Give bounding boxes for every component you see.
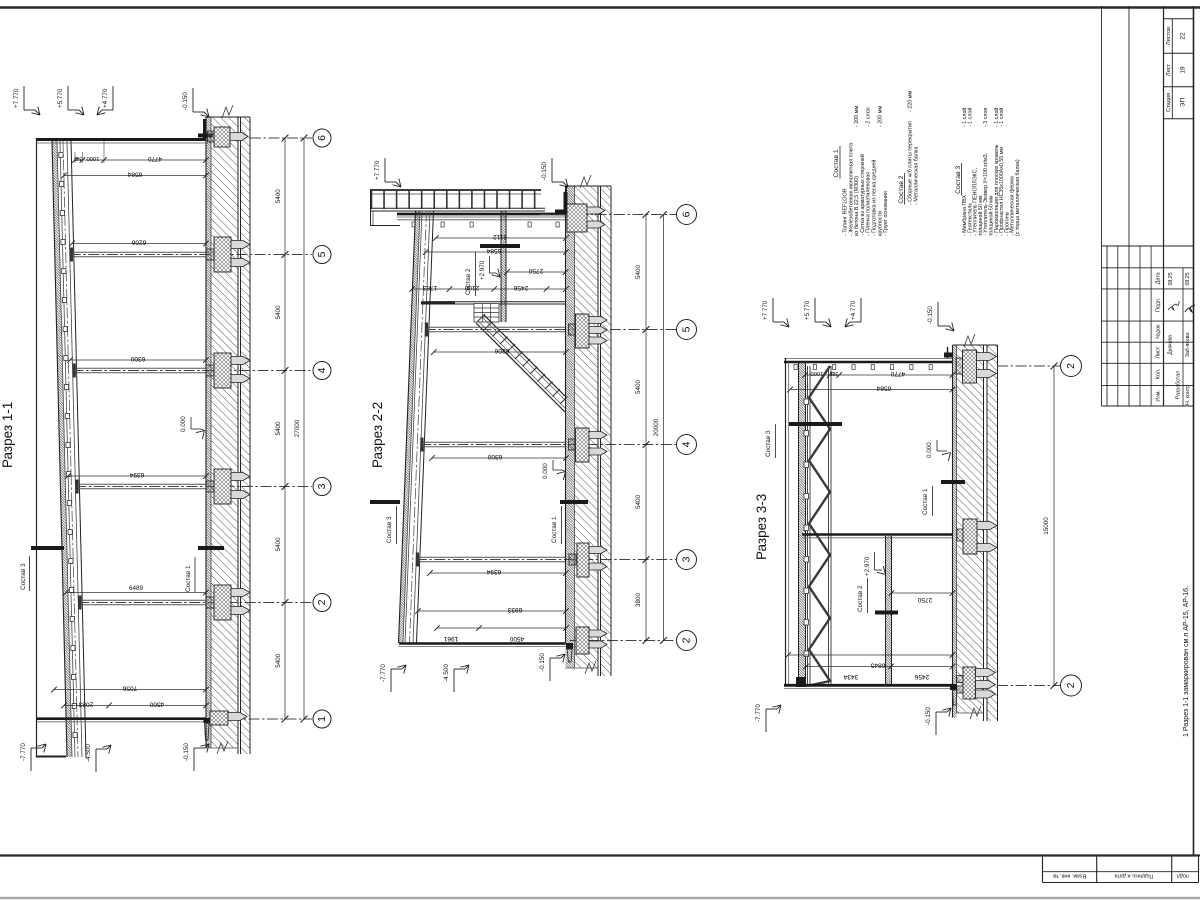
svg-text:Состав 2: Состав 2 [465,268,472,295]
svg-text:4770: 4770 [890,370,905,377]
svg-text:5: 5 [316,251,328,257]
svg-text:1000: 1000 [811,370,824,376]
svg-text:2: 2 [1065,682,1077,688]
svg-text:+7.770: +7.770 [13,88,20,108]
svg-text:ЭП: ЭП [1180,98,1187,108]
svg-text:1961: 1961 [443,635,458,642]
svg-text:Состав 2: Состав 2 [898,175,905,203]
svg-text:+5.770: +5.770 [57,88,64,108]
svg-text:5400: 5400 [275,537,282,552]
svg-text:Состав 1: Состав 1 [922,488,929,515]
svg-text:-0.150: -0.150 [927,306,934,324]
svg-text:5400: 5400 [275,653,282,668]
svg-text:подл.: подл. [1175,873,1189,879]
svg-text:6: 6 [681,211,693,217]
svg-text:3: 3 [316,483,328,489]
svg-text:2083: 2083 [78,701,93,708]
svg-text:1763: 1763 [422,284,437,291]
svg-text:3800: 3800 [635,593,642,608]
svg-text:Разрез 1-1: Разрез 1-1 [0,402,15,468]
svg-text:5400: 5400 [635,380,642,395]
svg-text:4500: 4500 [149,701,164,708]
svg-text:Состав 2: Состав 2 [857,585,864,612]
svg-text:+4.770: +4.770 [850,300,857,320]
svg-text:1: 1 [316,716,328,722]
svg-text:7056: 7056 [122,685,137,692]
svg-text:-0.150: -0.150 [183,743,190,761]
svg-text:+7.770: +7.770 [374,160,381,180]
svg-text:6394: 6394 [129,471,144,478]
svg-text:- 200 мм: - 200 мм [877,106,883,127]
svg-text:- 3 слоя: - 3 слоя [983,108,989,127]
svg-text:Листов: Листов [1166,27,1172,45]
svg-text:6845: 6845 [870,662,885,669]
svg-text:4: 4 [681,441,693,447]
svg-text:5: 5 [681,326,693,332]
svg-text:6584: 6584 [127,171,142,178]
svg-text:+4.770: +4.770 [102,88,109,108]
svg-text:Состав 1: Состав 1 [185,565,192,592]
svg-text:5400: 5400 [635,265,642,280]
svg-text:6584: 6584 [876,385,891,392]
svg-text:Подп.: Подп. [1156,298,1162,312]
svg-text:2750: 2750 [917,596,932,603]
svg-text:(с торца металлическая балка): (с торца металлическая балка) [1015,159,1021,236]
svg-text:- Металлическая балка: - Металлическая балка [914,147,920,205]
svg-text:08.25: 08.25 [1185,272,1191,285]
svg-text:Заб-якова: Заб-якова [1185,333,1191,357]
svg-text:+5.770: +5.770 [804,300,811,320]
svg-text:Состав 3: Состав 3 [765,430,772,457]
svg-text:2: 2 [681,637,693,643]
svg-text:-0.150: -0.150 [541,162,548,180]
svg-text:2: 2 [316,599,328,605]
svg-text:6933: 6933 [507,606,522,613]
svg-text:Лист: Лист [1166,63,1172,76]
svg-text:6394: 6394 [486,568,501,575]
svg-text:-7.770: -7.770 [380,664,387,682]
svg-text:27000: 27000 [294,419,301,437]
svg-text:2456: 2456 [914,673,929,680]
svg-text:0.000: 0.000 [180,416,187,432]
svg-text:-4.500: -4.500 [443,664,450,682]
svg-text:Стадия: Стадия [1166,93,1172,112]
svg-text:-7.770: -7.770 [20,743,27,761]
svg-text:1000: 1000 [87,155,100,161]
svg-text:Кол.: Кол. [1156,369,1162,380]
svg-text:Изм.: Изм. [1156,390,1162,402]
svg-text:6: 6 [316,135,328,141]
svg-text:5400: 5400 [275,305,282,320]
svg-text:1 Разрез 1-1 замаркирован см л: 1 Разрез 1-1 замаркирован см л АР-15, АР… [1183,586,1190,737]
svg-text:Н. контр: Н. контр [1185,385,1191,405]
svg-text:5400: 5400 [275,421,282,436]
svg-text:-0.150: -0.150 [539,653,546,671]
svg-text:19: 19 [1180,66,1187,74]
svg-text:-0.150: -0.150 [925,707,932,725]
svg-text:Разрез 3-3: Разрез 3-3 [754,494,769,560]
svg-text:3: 3 [681,556,693,562]
svg-text:22: 22 [1180,32,1187,40]
svg-text:- 220 мм: - 220 мм [908,91,914,112]
svg-text:5400: 5400 [275,189,282,204]
svg-text:-0.150: -0.150 [182,92,189,110]
svg-text:- 1 слой: - 1 слой [998,108,1005,127]
svg-text:0.000: 0.000 [542,463,549,479]
svg-text:- Грунт основания: - Грунт основания [883,191,889,236]
svg-text:Состав 1: Состав 1 [833,149,840,177]
svg-text:Разработал: Разработал [1176,371,1182,399]
svg-text:Состав 3: Состав 3 [386,516,393,543]
svg-text:+7.770: +7.770 [762,300,769,320]
svg-text:4: 4 [316,367,328,373]
svg-text:№док: №док [1156,324,1162,339]
svg-text:4770: 4770 [148,155,163,162]
svg-text:Лист: Лист [1156,346,1162,358]
svg-text:4500: 4500 [509,635,524,642]
svg-text:-4.500: -4.500 [85,744,92,762]
svg-text:6489: 6489 [129,585,144,592]
svg-text:Разрез 2-2: Разрез 2-2 [370,402,385,468]
svg-text:- 200 мм: - 200 мм [854,106,860,127]
svg-text:-7.770: -7.770 [755,704,762,722]
svg-text:08.25: 08.25 [1168,272,1174,285]
svg-text:6300: 6300 [130,355,145,362]
svg-text:Подпись и дата: Подпись и дата [1115,873,1154,879]
svg-text:Состав 3: Состав 3 [955,165,962,193]
svg-text:6112: 6112 [493,233,507,240]
svg-text:6300: 6300 [487,453,502,460]
svg-text:Дата: Дата [1156,272,1162,284]
svg-text:Состав 1: Состав 1 [551,516,558,543]
svg-text:- 1 слой: - 1 слой [966,108,973,127]
svg-text:+2.970: +2.970 [479,260,486,280]
svg-text:2750: 2750 [528,267,543,274]
svg-text:Дьякова: Дьякова [1168,335,1174,355]
svg-text:385: 385 [830,370,839,376]
svg-text:6206: 6206 [131,239,146,246]
svg-text:15000: 15000 [1043,517,1050,535]
svg-text:+2.970: +2.970 [864,556,871,576]
svg-text:3434: 3434 [843,673,858,680]
svg-text:Состав 3: Состав 3 [20,563,27,590]
svg-text:Взам. инв. №: Взам. инв. № [1053,873,1087,879]
svg-text:2: 2 [1065,363,1077,369]
svg-text:6206: 6206 [494,347,509,354]
svg-text:5400: 5400 [635,495,642,510]
svg-text:- 2 слоя: - 2 слоя [866,107,872,127]
svg-text:20000: 20000 [653,418,660,436]
svg-text:6584: 6584 [486,247,501,254]
svg-text:0.000: 0.000 [926,442,933,458]
svg-text:2456: 2456 [513,284,528,291]
